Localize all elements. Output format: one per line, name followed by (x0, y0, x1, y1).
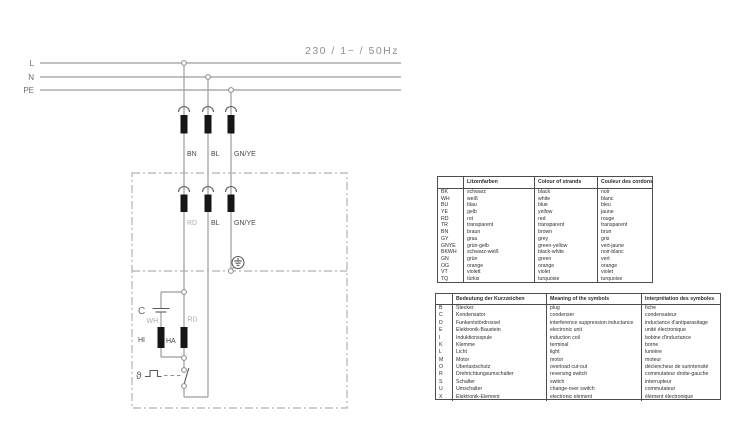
wire-color-table-header: Litzenfarben Colour of strands Couleur d… (438, 177, 652, 189)
cell-de: grün (463, 256, 534, 263)
cell-de: Elektronik-Baustein (452, 327, 546, 334)
cell-fr: turquoise (597, 276, 653, 283)
cell-fr: orange (597, 263, 653, 270)
line-l-label: L (30, 59, 35, 68)
cell-en: brown (534, 229, 597, 236)
cell-en: light (546, 349, 641, 356)
thermal-theta-label: ϑ (136, 371, 142, 382)
cell-fr: interrupteur (641, 379, 720, 386)
cell-code: BU (438, 202, 463, 209)
heater-element-ha (181, 327, 188, 348)
cell-en: change-over switch (546, 386, 641, 393)
heater-wire-label: RD (188, 317, 198, 324)
cell-fr: jaune (597, 209, 653, 216)
cell-code: L (436, 349, 452, 356)
cell-en: green (534, 256, 597, 263)
cell-de: braun (463, 229, 534, 236)
cell-code: RD (438, 216, 463, 223)
earth-junction-node (228, 269, 233, 274)
cell-de: weiß (463, 196, 534, 203)
cell-en: white (534, 196, 597, 203)
table-row: YE gelb yellow jaune (438, 209, 652, 216)
table-row: D Funkentstördrossel interference suppre… (436, 320, 720, 327)
earth-symbol (231, 257, 244, 270)
inner-label-gnye: GN/YE (234, 220, 256, 227)
cell-de: Schalter (452, 379, 546, 386)
cell-code: GN (438, 256, 463, 263)
cell-fr: fiche (641, 305, 720, 312)
supply-rails: L N PE (23, 59, 401, 95)
cell-de: Funkentstördrossel (452, 320, 546, 327)
cell-en: yellow (534, 209, 597, 216)
heater-hi-label: HI (138, 337, 145, 344)
cell-code: VT (438, 269, 463, 276)
cell-en: condenser (546, 312, 641, 319)
cell-fr: bobine d'inductance (641, 335, 720, 342)
table-row: BKWH schwarz-weiß black-white noir-blanc (438, 249, 652, 256)
cell-fr: vert-jaune (597, 243, 653, 250)
heater-element-hi (158, 327, 165, 348)
cell-code: BKWH (438, 249, 463, 256)
cell-fr: blanc (597, 196, 653, 203)
table-row: WH weiß white blanc (438, 196, 652, 203)
header-en: Colour of strands (534, 177, 597, 188)
tap-node-n (206, 75, 211, 80)
cell-de: Umschalter (452, 386, 546, 393)
cell-code: D (436, 320, 452, 327)
header-code (438, 177, 463, 188)
cell-code: B (436, 305, 452, 312)
header-de: Litzenfarben (463, 177, 534, 188)
cell-code: O (436, 364, 452, 371)
table-row: K Klemme terminal borne (436, 342, 720, 349)
cell-en: reversing switch (546, 371, 641, 378)
cell-de: schwarz (463, 189, 534, 196)
switch-contact-top (182, 368, 187, 373)
cell-en: blue (534, 202, 597, 209)
cell-en: black (534, 189, 597, 196)
cell-code: S (436, 379, 452, 386)
cell-code: TQ (438, 276, 463, 283)
cell-de: Klemme (452, 342, 546, 349)
cell-fr: inductance d'antiparasitage (641, 320, 720, 327)
tap-node-pe (229, 88, 234, 93)
cell-fr: bleu (597, 202, 653, 209)
cell-de: Elektronik-Element (452, 394, 546, 401)
cap-wire-label: WH (147, 318, 159, 325)
table-row: GY grau grey gris (438, 236, 652, 243)
cell-fr: noir-blanc (597, 249, 653, 256)
cell-de: gelb (463, 209, 534, 216)
cell-fr: brun (597, 229, 653, 236)
cell-fr: gris (597, 236, 653, 243)
cell-en: terminal (546, 342, 641, 349)
symbol-legend-body: B Stecker plug fiche C Kondensator conde… (436, 305, 720, 401)
symbol-legend-header: Bedeutung der Kurzzeichen Meaning of the… (436, 294, 720, 305)
thermal-step-symbol (145, 371, 162, 377)
table-row: X Elektronik-Element electronic element … (436, 394, 720, 401)
cell-de: grün-gelb (463, 243, 534, 250)
heater-circuit: C WH RD HI HA (138, 290, 198, 361)
cell-de: violett (463, 269, 534, 276)
table-row: E Elektronik-Baustein electronic unit un… (436, 327, 720, 334)
cell-code: OG (438, 263, 463, 270)
cell-de: Motor (452, 357, 546, 364)
cord-label-gnye: GN/YE (234, 151, 256, 158)
table-row: GN grün green vert (438, 256, 652, 263)
cell-fr: unité électronique (641, 327, 720, 334)
header-fr: Couleur des cordons (597, 177, 653, 188)
cord-label-bn: BN (187, 151, 197, 158)
cell-code: C (436, 312, 452, 319)
cell-en: turquoise (534, 276, 597, 283)
table-row: BU blau blue bleu (438, 202, 652, 209)
cell-code: WH (438, 196, 463, 203)
cell-de: rot (463, 216, 534, 223)
table-row: I Induktionsspule induction coil bobine … (436, 335, 720, 342)
table-row: RD rot red rouge (438, 216, 652, 223)
header-code (436, 294, 452, 304)
appliance-boundary (132, 173, 347, 408)
table-row: M Motor motor moteur (436, 357, 720, 364)
cell-en: black-white (534, 249, 597, 256)
header-de: Bedeutung der Kurzzeichen (452, 294, 546, 304)
heater-ha-label: HA (166, 338, 176, 345)
cell-en: interference suppression inductance (546, 320, 641, 327)
table-row: R Drehrichtungsumschalter reversing swit… (436, 371, 720, 378)
inner-label-bl: BL (211, 220, 220, 227)
capacitor-symbol (153, 309, 170, 313)
cell-de: türkis (463, 276, 534, 283)
cell-de: Induktionsspule (452, 335, 546, 342)
cell-de: Licht (452, 349, 546, 356)
table-row: O Überlastschutz overload cut-out déclen… (436, 364, 720, 371)
cell-code: K (436, 342, 452, 349)
cell-en: plug (546, 305, 641, 312)
cell-en: electronic element (546, 394, 641, 401)
cell-en: red (534, 216, 597, 223)
cell-code: BK (438, 189, 463, 196)
cell-en: electronic unit (546, 327, 641, 334)
cell-de: Kondensator (452, 312, 546, 319)
cell-en: transparent (534, 222, 597, 229)
cell-fr: condensateur (641, 312, 720, 319)
cell-code: R (436, 371, 452, 378)
table-row: BK schwarz black noir (438, 189, 652, 196)
cell-code: E (436, 327, 452, 334)
cell-fr: transparent (597, 222, 653, 229)
cord-label-bl: BL (211, 151, 220, 158)
table-row: OG orange orange orange (438, 263, 652, 270)
cell-code: U (436, 386, 452, 393)
cell-de: orange (463, 263, 534, 270)
cell-en: switch (546, 379, 641, 386)
table-row: B Stecker plug fiche (436, 305, 720, 312)
cell-code: YE (438, 209, 463, 216)
table-row: BN braun brown brun (438, 229, 652, 236)
tap-node-l (182, 61, 187, 66)
cell-code: GY (438, 236, 463, 243)
schematic-page: 230 / 1~ / 50Hz L N PE BN BL GN/YE (0, 0, 750, 442)
cell-fr: lumière (641, 349, 720, 356)
switch-contact-bottom (182, 384, 187, 389)
cell-fr: commutateur droite-gauche (641, 371, 720, 378)
cell-de: Stecker (452, 305, 546, 312)
line-pe-label: PE (23, 86, 34, 95)
wire-color-table-body: BK schwarz black noir WH weiß white blan… (438, 189, 652, 283)
junction-node-top (182, 290, 187, 295)
cell-fr: déclencheur de surintensité (641, 364, 720, 371)
cell-code: M (436, 357, 452, 364)
inner-label-rd: RD (187, 220, 197, 227)
table-row: U Umschalter change-over switch commutat… (436, 386, 720, 393)
junction-node-bottom (182, 356, 187, 361)
cell-en: motor (546, 357, 641, 364)
cell-code: I (436, 335, 452, 342)
header-en: Meaning of the symbols (546, 294, 641, 304)
cell-en: overload cut-out (546, 364, 641, 371)
header-fr: Interprétation des symboles (641, 294, 720, 304)
cell-de: schwarz-weiß (463, 249, 534, 256)
cell-fr: violet (597, 269, 653, 276)
table-row: L Licht light lumière (436, 349, 720, 356)
table-row: TR transparent transparent transparent (438, 222, 652, 229)
capacitor-label: C (138, 306, 145, 317)
cell-code: GNYE (438, 243, 463, 250)
table-row: TQ türkis turquoise turquoise (438, 276, 652, 283)
table-row: VT violett violet violet (438, 269, 652, 276)
cell-fr: rouge (597, 216, 653, 223)
supply-spec-label: 230 / 1~ / 50Hz (305, 45, 399, 57)
cell-en: orange (534, 263, 597, 270)
cell-fr: commutateur (641, 386, 720, 393)
symbol-legend-table: Bedeutung der Kurzzeichen Meaning of the… (435, 293, 721, 400)
cell-code: TR (438, 222, 463, 229)
cell-de: transparent (463, 222, 534, 229)
cell-en: green-yellow (534, 243, 597, 250)
cell-en: induction coil (546, 335, 641, 342)
cell-fr: noir (597, 189, 653, 196)
cell-fr: élément électronique (641, 394, 720, 401)
wire-color-table: Litzenfarben Colour of strands Couleur d… (437, 176, 653, 283)
cell-en: violet (534, 269, 597, 276)
cell-fr: moteur (641, 357, 720, 364)
cell-fr: vert (597, 256, 653, 263)
line-n-label: N (28, 73, 34, 82)
thermal-cutout-switch: ϑ (136, 360, 208, 397)
cell-de: Überlastschutz (452, 364, 546, 371)
table-row: S Schalter switch interrupteur (436, 379, 720, 386)
cell-code: BN (438, 229, 463, 236)
cell-fr: borne (641, 342, 720, 349)
table-row: GNYE grün-gelb green-yellow vert-jaune (438, 243, 652, 250)
cell-de: grau (463, 236, 534, 243)
cell-code: X (436, 394, 452, 401)
cell-de: Drehrichtungsumschalter (452, 371, 546, 378)
cell-de: blau (463, 202, 534, 209)
cell-en: grey (534, 236, 597, 243)
table-row: C Kondensator condenser condensateur (436, 312, 720, 319)
